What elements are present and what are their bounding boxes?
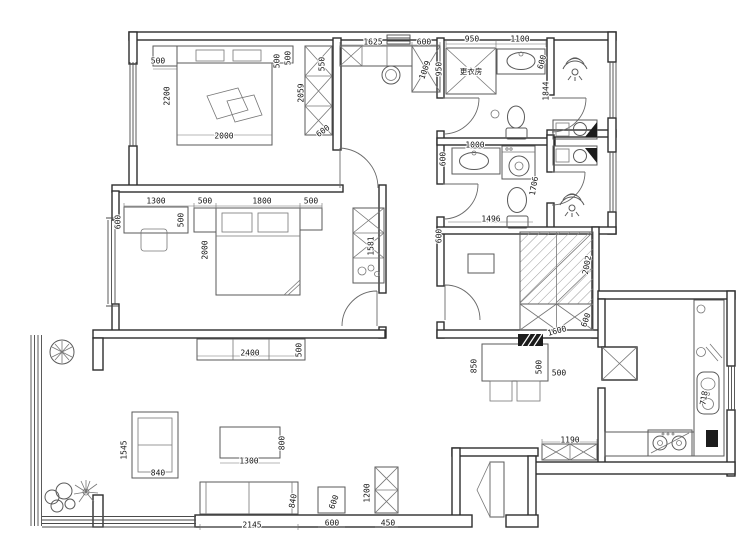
floor-plan-canvas: 更衣房 500220020005005005502059600162560010…	[0, 0, 740, 550]
coffee-table	[220, 427, 280, 458]
pillow	[233, 50, 261, 61]
mirror	[382, 66, 400, 84]
shoe-cabinet	[542, 444, 597, 460]
window-shower-room-bottom	[610, 152, 616, 212]
dimension-labels: 5002200200050050055020596001625600100995…	[114, 35, 710, 530]
dimension-label: 500	[284, 51, 293, 66]
balcony	[45, 340, 98, 512]
nightstand	[300, 208, 322, 230]
dressing-room	[446, 48, 545, 139]
dimension-label: 1625	[363, 38, 382, 47]
shower-symbol	[563, 58, 587, 81]
chair	[517, 381, 540, 401]
dimension-label: 1300	[146, 197, 165, 206]
washing-machine	[502, 146, 535, 179]
chair	[490, 381, 512, 401]
dimension-label: 500	[198, 197, 213, 206]
bathroom-sink	[452, 148, 500, 174]
dimension-label: 800	[278, 436, 287, 451]
dimension-label: 550	[318, 57, 327, 72]
dimension-label: 600	[439, 152, 448, 167]
basin	[574, 150, 587, 163]
entry	[542, 444, 597, 460]
dimension-label: 1706	[528, 176, 540, 197]
door-bathroom[interactable]	[443, 184, 478, 219]
dimension-label: 600	[314, 123, 331, 139]
shower-symbol	[560, 194, 584, 217]
dimension-label: 600	[114, 215, 123, 230]
blanket	[207, 88, 248, 119]
dimension-label: 850	[470, 359, 479, 374]
dimension-label: 600	[435, 229, 444, 244]
dimension-label: 600	[417, 38, 432, 47]
dimension-label: 1009	[417, 59, 432, 80]
dimension-label: 840	[287, 493, 298, 509]
corner-unit	[697, 305, 705, 313]
storage-cabinet	[375, 467, 398, 513]
dimension-label: 2200	[163, 86, 172, 105]
dimension-label: 1844	[542, 81, 551, 100]
dresser-items	[358, 267, 366, 275]
dimension-label: 718	[698, 390, 709, 406]
room-labels: 更衣房	[460, 66, 483, 76]
dimension-label: 2000	[214, 132, 233, 141]
dimension-label: 1100	[510, 35, 529, 44]
furniture	[45, 46, 724, 514]
sofa	[200, 482, 298, 514]
structural-column	[602, 347, 637, 380]
dimension-label: 500	[177, 213, 186, 228]
dimension-label: 500	[535, 360, 544, 375]
window-shower-room-top	[610, 62, 616, 118]
dimension-label: 1545	[120, 440, 129, 459]
dimension-label: 500	[552, 369, 567, 378]
radiator	[518, 334, 543, 346]
dimension-label: 950	[465, 35, 480, 44]
door-corridor[interactable]	[340, 148, 378, 188]
dimension-label: 1800	[252, 197, 271, 206]
gas-stove	[648, 430, 692, 456]
entry-door[interactable]	[477, 462, 504, 517]
window-master-bay	[106, 218, 119, 306]
dimension-label: 1581	[367, 236, 376, 255]
corner-unit	[697, 348, 706, 357]
dimension-label: 950	[435, 62, 444, 77]
pillow	[258, 213, 288, 232]
dimension-label: 500	[295, 343, 304, 358]
floor-plan-drawing: 更衣房 500220020005005005502059600162560010…	[0, 0, 740, 550]
appliance	[706, 430, 718, 447]
dimension-label: 600	[325, 519, 340, 528]
chair	[141, 229, 167, 251]
shower-room-bottom	[553, 146, 597, 217]
room-label: 更衣房	[460, 66, 483, 76]
round-table-chairs	[45, 483, 75, 512]
door-master-bedroom[interactable]	[342, 291, 377, 326]
counter-bottom	[605, 432, 694, 456]
dimension-label: 1300	[239, 457, 258, 466]
dimension-label: 1496	[481, 215, 500, 224]
study-room	[468, 232, 593, 330]
dimension-label: 450	[381, 519, 396, 528]
door-study[interactable]	[445, 285, 480, 320]
nightstand	[194, 208, 216, 232]
dimension-label: 500	[304, 197, 319, 206]
window-kitchen	[729, 366, 735, 410]
desk	[468, 254, 494, 273]
toilet	[491, 106, 527, 139]
blanket	[227, 95, 262, 122]
window-bedroom1-left	[130, 62, 136, 146]
dining-area	[482, 334, 637, 401]
dimension-label: 840	[151, 469, 166, 478]
dimension-label: 1190	[560, 436, 579, 445]
dimension-label: 2059	[297, 83, 306, 102]
dimension-label: 1200	[363, 483, 372, 502]
door-dressing-room[interactable]	[443, 98, 479, 134]
dimension-label: 1000	[465, 141, 484, 150]
balcony-glazing	[31, 335, 196, 527]
dimension-label: 500	[273, 54, 282, 69]
dimension-label: 500	[151, 57, 166, 66]
pillow	[222, 213, 252, 232]
potted-plant	[50, 340, 74, 364]
pillow	[196, 50, 224, 61]
dimension-label: 2400	[240, 349, 259, 358]
dimension-label: 2145	[242, 521, 261, 530]
dimension-label: 600	[327, 494, 340, 511]
dimension-label: 2000	[201, 240, 210, 259]
walls	[93, 32, 735, 527]
dimension-label: 600	[579, 312, 592, 329]
